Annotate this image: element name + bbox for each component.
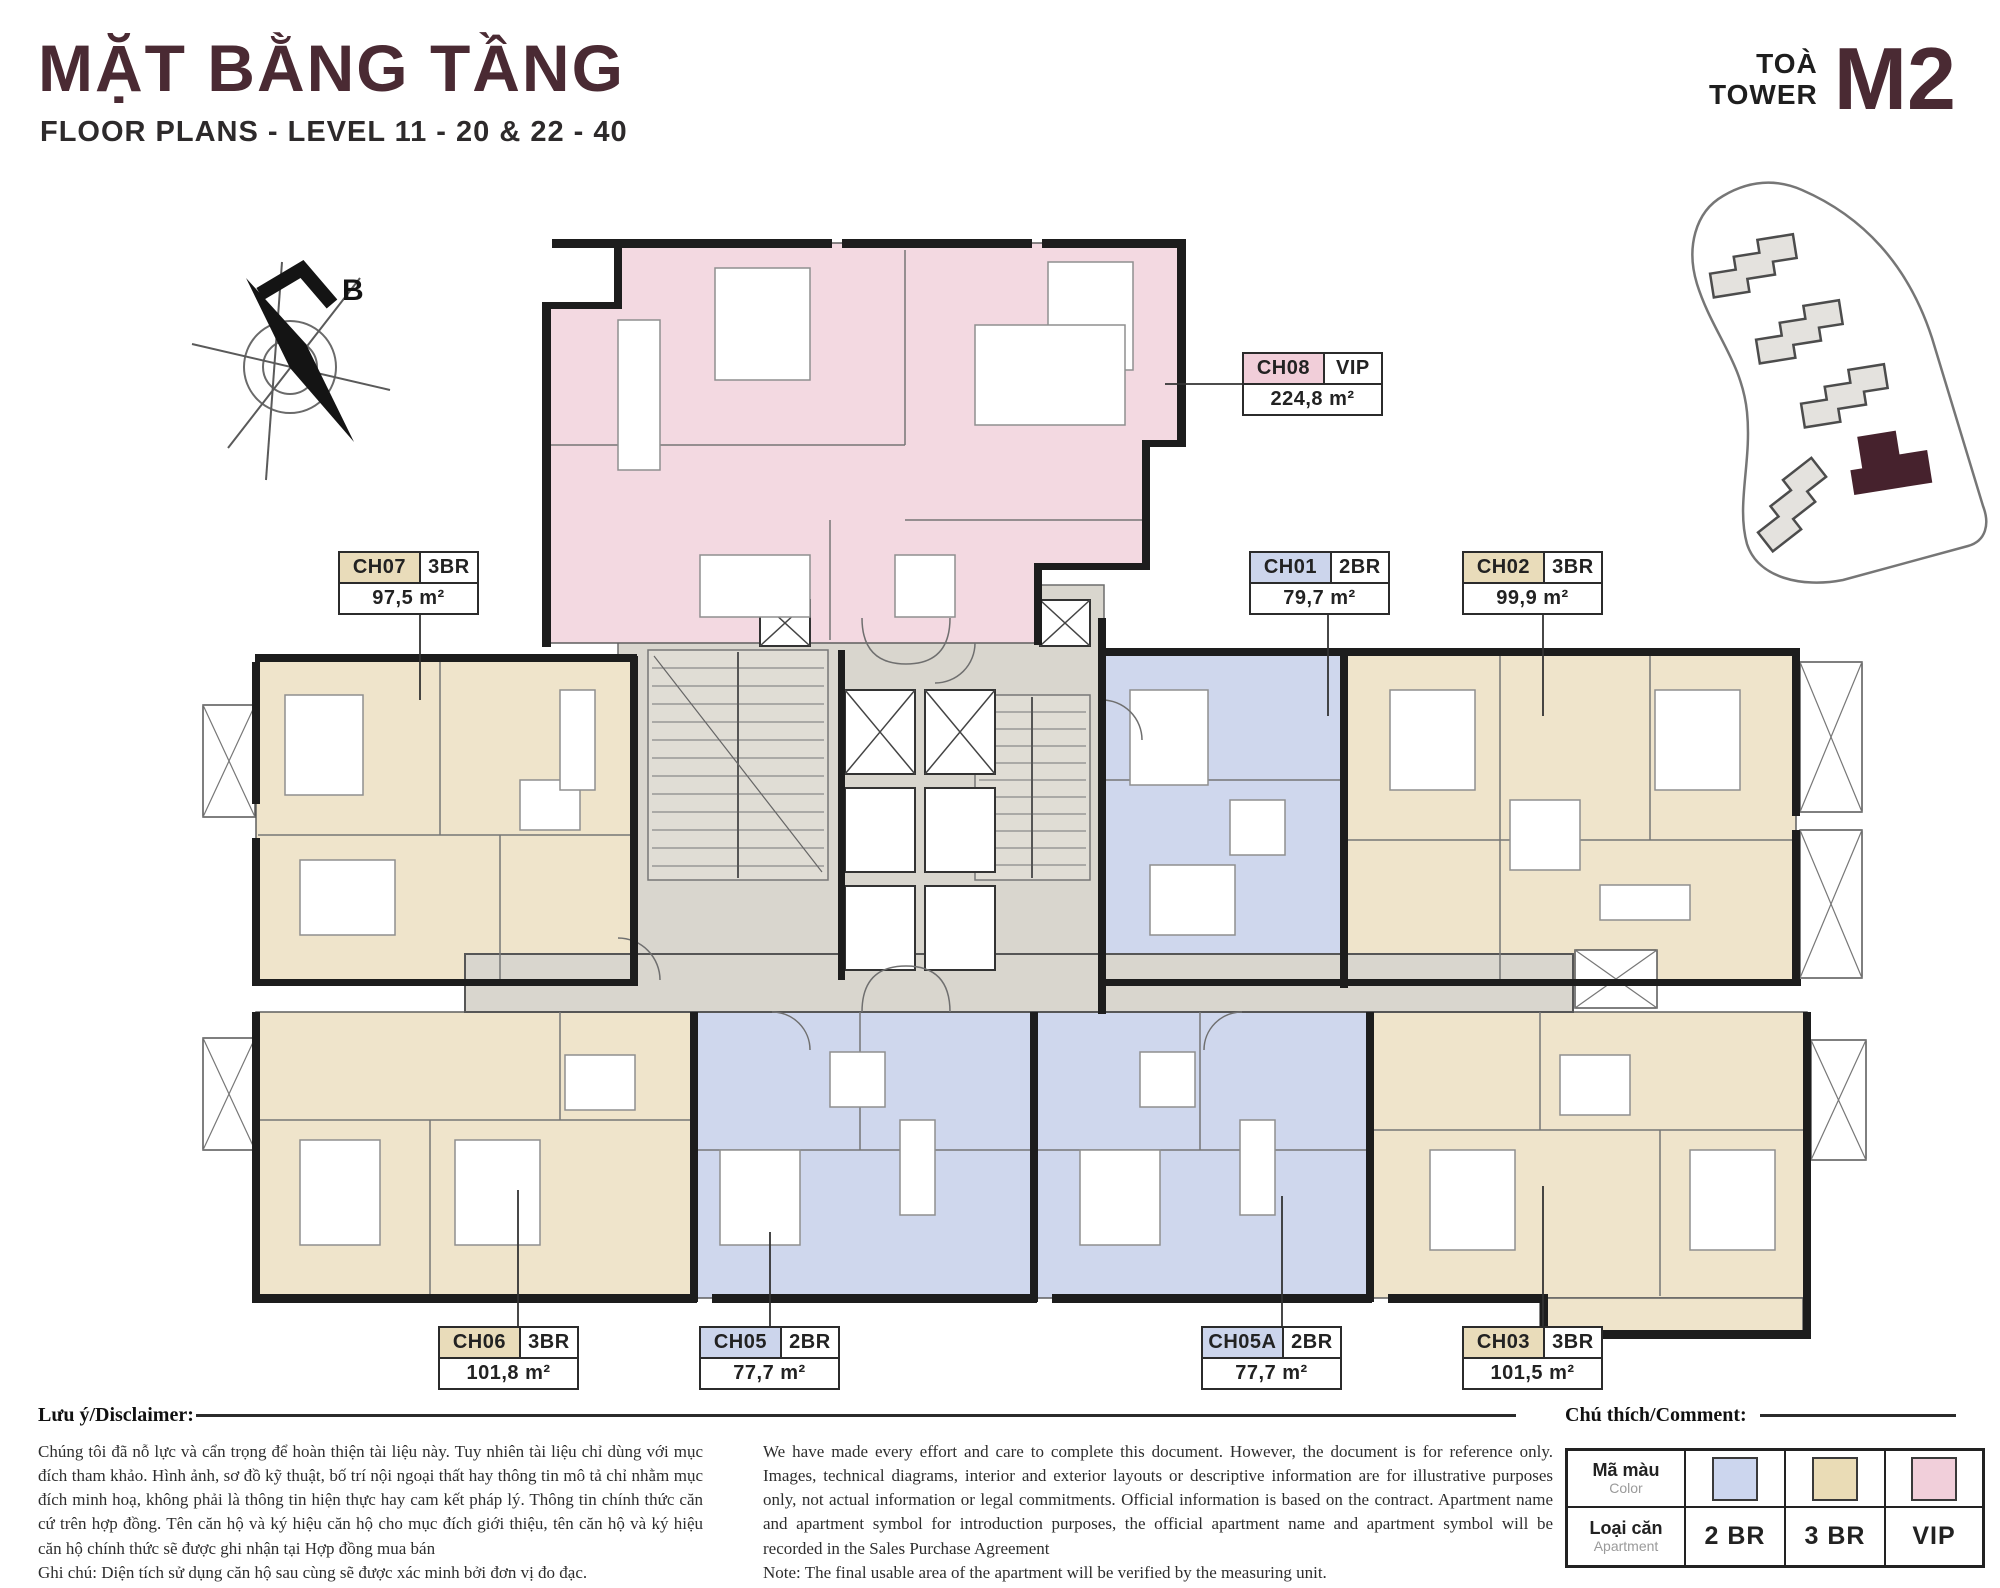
apartment-area: 77,7 m²	[701, 1359, 838, 1388]
apartment-id: CH03	[1464, 1328, 1545, 1357]
legend-type-row-label: Loại căn Apartment	[1568, 1508, 1686, 1565]
apartment-id: CH07	[340, 553, 421, 582]
legend-color-row-label: Mã màu Color	[1568, 1451, 1686, 1508]
floor-plan-page: B	[0, 0, 2000, 1588]
apartment-area: 97,5 m²	[340, 584, 477, 613]
tower-word-en: TOWER	[1709, 79, 1818, 110]
compass-icon: B	[192, 262, 390, 480]
legend-type-label-en: Apartment	[1594, 1539, 1659, 1554]
apartment-area: 101,8 m²	[440, 1359, 577, 1388]
tower-code: M2	[1834, 42, 1956, 117]
apartment-label-ch01: CH012BR 79,7 m²	[1249, 551, 1390, 615]
legend-heading: Chú thích/Comment:	[1565, 1404, 1747, 1427]
page-subtitle: FLOOR PLANS - LEVEL 11 - 20 & 22 - 40	[40, 116, 628, 149]
legend-type-3br: 3 BR	[1786, 1508, 1886, 1565]
apartment-type: 2BR	[782, 1328, 838, 1357]
legend-swatch-cell-2br	[1686, 1451, 1786, 1508]
disclaimer-vietnamese-body: Chúng tôi đã nỗ lực và cẩn trọng để hoàn…	[38, 1442, 703, 1558]
apartment-label-ch05a: CH05A2BR 77,7 m²	[1201, 1326, 1342, 1390]
disclaimer-rule	[196, 1414, 1516, 1417]
legend-type-vip: VIP	[1886, 1508, 1982, 1565]
apartment-label-ch03: CH033BR 101,5 m²	[1462, 1326, 1603, 1390]
apartment-type: 3BR	[1545, 1328, 1601, 1357]
apartment-type: 3BR	[1545, 553, 1601, 582]
apartment-type: VIP	[1325, 354, 1381, 383]
disclaimer-english-body: We have made every effort and care to co…	[763, 1442, 1553, 1558]
legend-swatch-cell-vip	[1886, 1451, 1982, 1508]
apartment-id: CH05A	[1203, 1328, 1284, 1357]
legend-type-2br: 2 BR	[1686, 1508, 1786, 1565]
legend-color-label-en: Color	[1609, 1481, 1642, 1496]
compass-north-label: B	[342, 274, 364, 307]
apartment-label-ch08: CH08VIP 224,8 m²	[1242, 352, 1383, 416]
apartment-id: CH05	[701, 1328, 782, 1357]
legend-table: Mã màu Color Loại căn Apartment 2 BR 3 B…	[1565, 1448, 1985, 1568]
apartment-type: 2BR	[1332, 553, 1388, 582]
legend-swatch-2br	[1712, 1457, 1758, 1501]
apartment-area: 101,5 m²	[1464, 1359, 1601, 1388]
disclaimer-heading: Lưu ý/Disclaimer:	[38, 1404, 194, 1427]
apartment-type: 3BR	[421, 553, 477, 582]
legend-rule	[1760, 1414, 1956, 1417]
disclaimer-vietnamese-note: Ghi chú: Diện tích sử dụng căn hộ sau cù…	[38, 1561, 703, 1585]
apartment-label-ch05: CH052BR 77,7 m²	[699, 1326, 840, 1390]
apartment-label-ch02: CH023BR 99,9 m²	[1462, 551, 1603, 615]
apartment-id: CH08	[1244, 354, 1325, 383]
tower-word-vi: TOÀ	[1709, 48, 1818, 79]
legend-type-label-vi: Loại căn	[1589, 1519, 1662, 1539]
legend-swatch-cell-3br	[1786, 1451, 1886, 1508]
legend-color-label-vi: Mã màu	[1592, 1461, 1659, 1481]
floor-plan-drawing: B	[0, 0, 2000, 1588]
page-title: MẶT BẰNG TẦNG	[38, 30, 625, 106]
apartment-area: 79,7 m²	[1251, 584, 1388, 613]
apartment-id: CH01	[1251, 553, 1332, 582]
apartment-area: 224,8 m²	[1244, 385, 1381, 414]
site-key-map	[1692, 183, 1986, 583]
apartment-area: 77,7 m²	[1203, 1359, 1340, 1388]
legend-swatch-3br	[1812, 1457, 1858, 1501]
apartment-id: CH06	[440, 1328, 521, 1357]
apartment-area: 99,9 m²	[1464, 584, 1601, 613]
disclaimer-vietnamese: Chúng tôi đã nỗ lực và cẩn trọng để hoàn…	[38, 1440, 703, 1585]
tower-badge: TOÀ TOWER M2	[1709, 42, 1956, 117]
apartment-type: 2BR	[1284, 1328, 1340, 1357]
disclaimer-english-note: Note: The final usable area of the apart…	[763, 1561, 1553, 1585]
apartment-label-ch06: CH063BR 101,8 m²	[438, 1326, 579, 1390]
apartment-type: 3BR	[521, 1328, 577, 1357]
apartment-label-ch07: CH073BR 97,5 m²	[338, 551, 479, 615]
legend-swatch-vip	[1911, 1457, 1957, 1501]
apartment-id: CH02	[1464, 553, 1545, 582]
disclaimer-english: We have made every effort and care to co…	[763, 1440, 1553, 1585]
